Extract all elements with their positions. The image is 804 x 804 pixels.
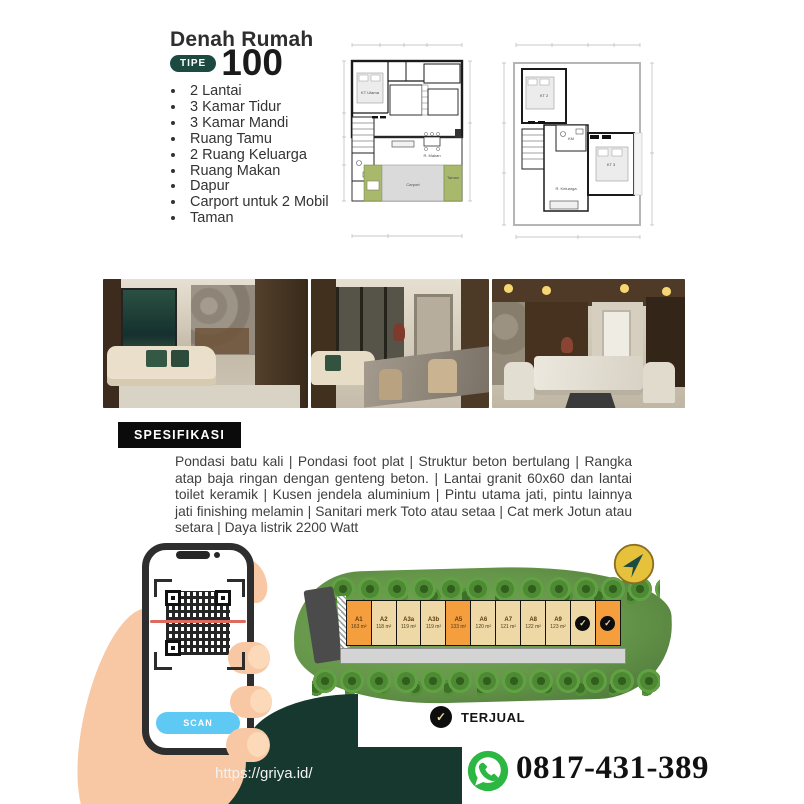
photo-layer <box>428 359 456 393</box>
photo-layer <box>534 356 642 395</box>
lot-area: 120 m² <box>476 624 492 630</box>
whatsapp-icon <box>466 749 510 793</box>
lot-area: 163 m² <box>351 624 367 630</box>
lot-A6: A6120 m² <box>470 600 496 646</box>
sold-check-icon: ✓ <box>575 616 590 631</box>
lot-id: A6 <box>480 617 488 623</box>
lot-A7: A7121 m² <box>495 600 521 646</box>
svg-text:KT Utama: KT Utama <box>361 90 380 95</box>
tree-row-bottom <box>312 666 660 696</box>
lot-A2: A2118 m² <box>371 600 397 646</box>
scan-corner-icon <box>154 579 172 597</box>
floorplan-level1: KT Utama R. Makan Carport Taman <box>332 33 480 248</box>
lot-id: A7 <box>504 617 512 623</box>
lot-id: A9 <box>554 617 562 623</box>
website-link[interactable]: https://griya.id/ <box>215 765 313 782</box>
fingertip <box>248 645 270 669</box>
svg-text:KM: KM <box>568 136 574 141</box>
north-arrow-icon <box>612 542 656 586</box>
photo-layer <box>504 362 535 401</box>
photo-layer <box>311 279 336 408</box>
lot-area: 121 m² <box>500 624 516 630</box>
feature-item: Carport untuk 2 Mobil <box>186 195 336 211</box>
feature-item: Ruang Tamu <box>186 132 336 148</box>
feature-item: Dapur <box>186 179 336 195</box>
lot-id: A2 <box>380 617 388 623</box>
svg-text:Carport: Carport <box>406 182 420 187</box>
scan-corner-icon <box>227 652 245 670</box>
lot-area: 122 m² <box>525 624 541 630</box>
fingertip <box>250 689 272 713</box>
svg-text:KT 2: KT 2 <box>540 93 549 98</box>
sold-legend-label: TERJUAL <box>461 710 525 725</box>
photo-layer <box>171 350 189 367</box>
photo-dining-room <box>492 279 685 408</box>
photo-layer <box>602 310 631 359</box>
feature-item: Ruang Makan <box>186 164 336 180</box>
photo-layer <box>325 355 341 370</box>
photo-strip <box>103 279 685 408</box>
phone-camera-icon <box>214 552 220 558</box>
lot-id: A5 <box>455 617 463 623</box>
spec-label: SPESIFIKASI <box>118 422 241 448</box>
flyer-page: Denah Rumah TIPE 100 2 Lantai3 Kamar Tid… <box>0 0 804 804</box>
floorplan-level2: KT 2 KM KT 3 R. Keluarga <box>492 33 662 248</box>
lot-A3b: A3b119 m² <box>420 600 446 646</box>
photo-layer <box>393 323 405 341</box>
lot-A3a: A3a119 m² <box>396 600 422 646</box>
phone-notch-icon <box>176 551 210 559</box>
lot-area: 133 m² <box>451 624 467 630</box>
lot-id: A3b <box>428 617 439 623</box>
lot-area: 119 m² <box>401 624 416 630</box>
lot-area: 118 m² <box>376 624 391 630</box>
feature-item: Taman <box>186 211 336 227</box>
photo-layer <box>565 393 615 408</box>
sold-check-icon: ✓ <box>600 616 615 631</box>
photo-dining-area <box>311 279 489 408</box>
lot-area: 119 m² <box>426 624 441 630</box>
lot-sold: ✓ <box>595 600 621 646</box>
sold-legend: ✓ TERJUAL <box>430 706 525 728</box>
lot-A8: A8122 m² <box>520 600 546 646</box>
lot-id: A8 <box>529 617 537 623</box>
feature-item: 3 Kamar Mandi <box>186 116 336 132</box>
scan-corner-icon <box>227 579 245 597</box>
feature-item: 2 Lantai <box>186 84 336 100</box>
svg-text:Taman: Taman <box>447 175 459 180</box>
lot-id: A3a <box>403 617 414 623</box>
lot-area: 123 m² <box>550 624 566 630</box>
lot-A1: A1163 m² <box>346 600 372 646</box>
feature-item: 2 Ruang Keluarga <box>186 148 336 164</box>
scan-corner-icon <box>154 652 172 670</box>
type-badge: TIPE <box>170 55 216 72</box>
lot-A9: A9123 m² <box>545 600 571 646</box>
svg-text:KT 3: KT 3 <box>607 162 616 167</box>
feature-item: 3 Kamar Tidur <box>186 100 336 116</box>
scan-line <box>150 620 246 623</box>
type-number: 100 <box>221 48 283 78</box>
siteplan-road <box>340 648 626 664</box>
fingertip <box>247 732 269 757</box>
photo-layer <box>119 385 299 408</box>
scan-button[interactable]: SCAN <box>156 712 240 734</box>
whatsapp-number[interactable]: 0817-431-389 <box>516 750 709 787</box>
photo-layer <box>643 362 676 403</box>
photo-layer <box>561 337 573 352</box>
svg-text:R. Makan: R. Makan <box>423 153 440 158</box>
lot-id: A1 <box>355 617 363 623</box>
lot-sold: ✓ <box>570 600 596 646</box>
lot-row: A1163 m²A2118 m²A3a119 m²A3b119 m²A5133 … <box>347 600 621 646</box>
sold-check-icon: ✓ <box>430 706 452 728</box>
type-row: TIPE 100 <box>170 48 283 78</box>
lot-A5: A5133 m² <box>445 600 471 646</box>
svg-text:R. Keluarga: R. Keluarga <box>555 186 577 191</box>
photo-layer <box>146 350 167 367</box>
qr-code[interactable] <box>163 588 233 658</box>
spec-text: Pondasi batu kali | Pondasi foot plat | … <box>175 454 632 537</box>
feature-list: 2 Lantai3 Kamar Tidur3 Kamar MandiRuang … <box>168 84 336 227</box>
photo-living-room <box>103 279 308 408</box>
photo-layer <box>379 369 402 400</box>
